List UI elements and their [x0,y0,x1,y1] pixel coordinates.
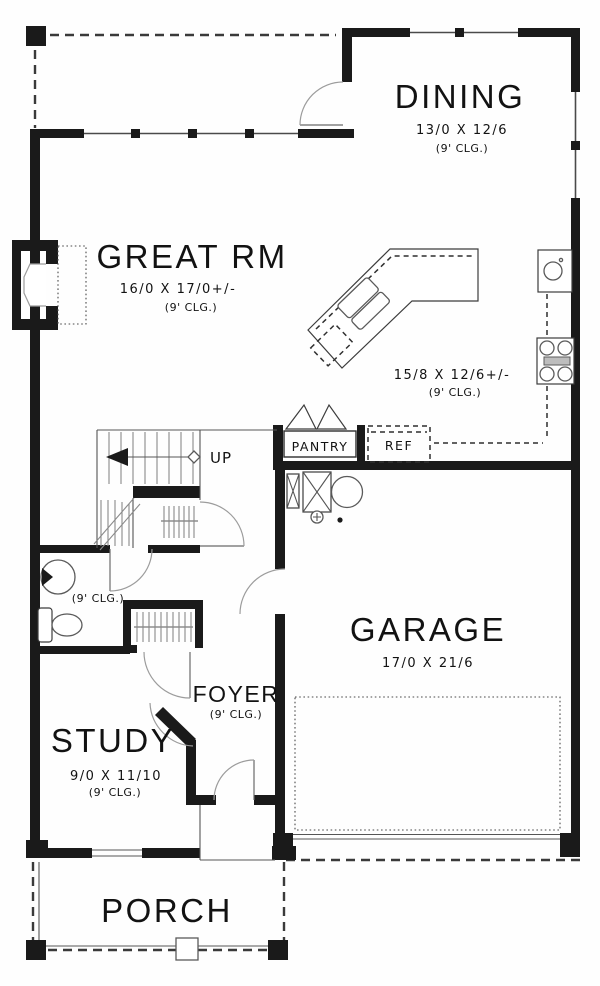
powder-sink-icon [41,560,75,594]
stairs-up-label: UP [210,449,232,467]
floor-plan-svg: DINING 13/0 X 12/6 (9' CLG.) GREAT RM 16… [0,0,600,986]
pantry-label: PANTRY [292,439,349,454]
fireplace [12,240,86,330]
dining-dims: 13/0 X 12/6 [416,123,508,138]
dining-ceiling: (9' CLG.) [436,142,488,155]
foyer-label: FOYER [193,681,280,707]
porch-outline [26,805,288,960]
water-heater-icon [332,477,363,508]
ref-label: REF [385,438,413,453]
porch-post [176,938,198,960]
floor-drain-icon [337,517,342,522]
dining-label: DINING [395,78,526,115]
garage-dims: 17/0 X 21/6 [382,656,474,671]
study-dims: 9/0 X 11/10 [70,769,162,784]
floor-plan: DINING 13/0 X 12/6 (9' CLG.) GREAT RM 16… [0,0,600,986]
wall-sink-icon [538,250,572,292]
garage-label: GARAGE [350,611,506,648]
kitchen-island [308,249,478,368]
kitchen-ceiling: (9' CLG.) [429,386,481,399]
great-rm-ceiling: (9' CLG.) [165,301,217,314]
powder-ceiling: (9' CLG.) [72,592,124,605]
coat-closet-hangers [134,612,193,642]
great-rm-dims: 16/0 X 17/0+/- [120,282,237,297]
deck-outline [26,26,336,128]
porch-label: PORCH [101,892,233,929]
range-icon [537,338,574,384]
great-rm-label: GREAT RM [96,238,287,275]
study-label: STUDY [51,722,175,759]
garage-items [287,472,560,830]
toilet-icon [38,608,82,642]
study-ceiling: (9' CLG.) [89,786,141,799]
kitchen-dims: 15/8 X 12/6+/- [394,368,511,383]
foyer-ceiling: (9' CLG.) [210,708,262,721]
